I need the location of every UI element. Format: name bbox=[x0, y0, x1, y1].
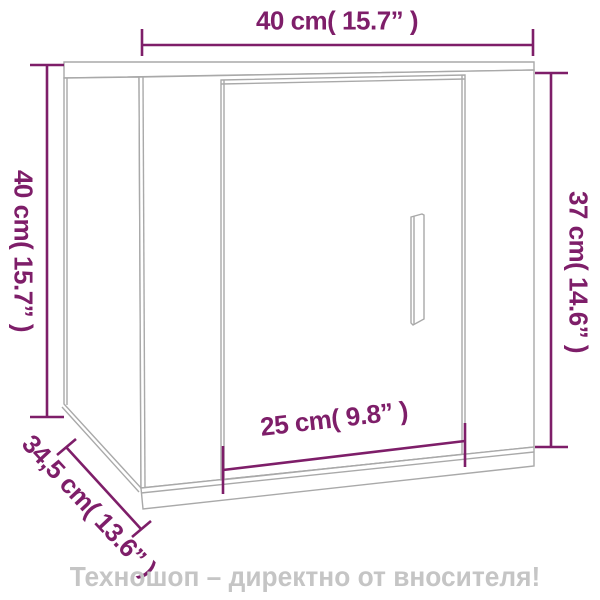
top-width-label: 40 cm( 15.7” ) bbox=[256, 6, 418, 37]
right-height-label: 37 cm( 14.6” ) bbox=[563, 191, 594, 353]
left-height-label: 40 cm( 15.7” ) bbox=[8, 170, 39, 332]
shop-watermark-text: Техношоп – директно от вносителя! bbox=[70, 561, 540, 593]
door-handle bbox=[411, 214, 424, 325]
dimension-diagram: 40 cm( 15.7” ) 40 cm( 15.7” ) 37 cm( 14.… bbox=[0, 0, 600, 600]
cabinet-side-panel bbox=[64, 77, 141, 488]
